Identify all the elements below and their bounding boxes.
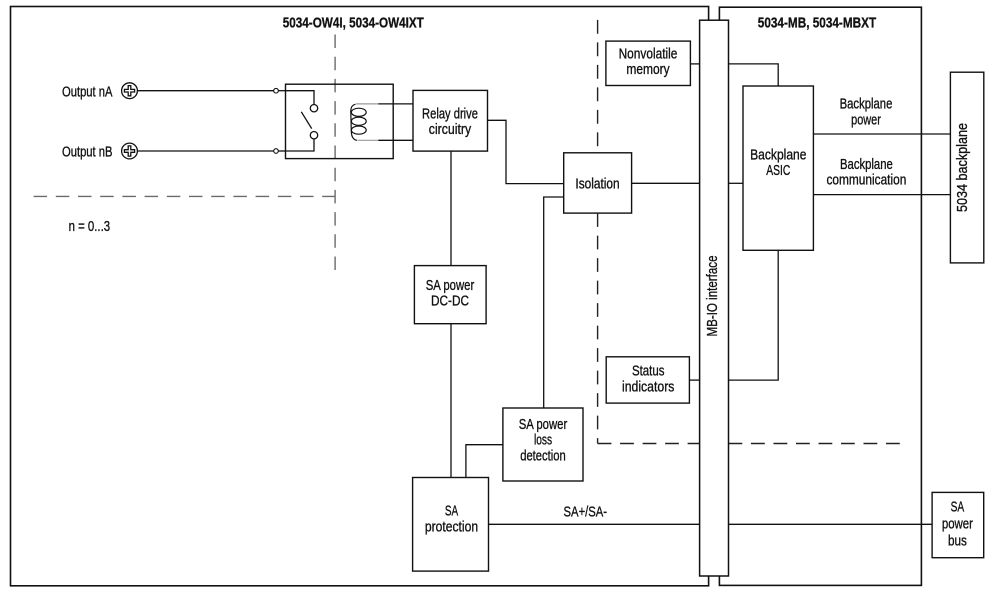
svg-text:5034 backplane: 5034 backplane xyxy=(955,123,971,212)
svg-text:SA: SA xyxy=(951,500,965,516)
svg-text:DC-DC: DC-DC xyxy=(431,294,469,310)
svg-text:communication: communication xyxy=(827,173,907,189)
svg-text:MB-IO interface: MB-IO interface xyxy=(705,256,721,337)
svg-text:power: power xyxy=(851,112,881,128)
svg-text:circuitry: circuitry xyxy=(429,122,472,138)
svg-text:power: power xyxy=(942,517,973,533)
svg-text:SA: SA xyxy=(445,504,459,520)
svg-text:Backplane: Backplane xyxy=(750,147,806,163)
svg-text:ASIC: ASIC xyxy=(766,163,790,179)
svg-text:memory: memory xyxy=(626,62,670,78)
svg-text:Status: Status xyxy=(632,364,665,380)
svg-text:Output nA: Output nA xyxy=(62,84,113,100)
svg-text:bus: bus xyxy=(948,534,967,550)
svg-text:detection: detection xyxy=(520,449,566,465)
svg-text:Nonvolatile: Nonvolatile xyxy=(619,46,678,62)
svg-text:SA power: SA power xyxy=(519,417,568,433)
svg-text:Isolation: Isolation xyxy=(575,176,619,192)
svg-text:5034-OW4I, 5034-OW4IXT: 5034-OW4I, 5034-OW4IXT xyxy=(283,14,424,31)
svg-text:protection: protection xyxy=(425,519,478,535)
svg-text:Backplane: Backplane xyxy=(840,157,893,173)
svg-text:indicators: indicators xyxy=(622,380,674,396)
svg-text:Backplane: Backplane xyxy=(840,97,893,113)
svg-text:SA power: SA power xyxy=(426,278,475,294)
svg-text:SA+/SA-: SA+/SA- xyxy=(564,505,608,521)
svg-text:loss: loss xyxy=(534,433,552,449)
svg-text:n = 0...3: n = 0...3 xyxy=(69,219,111,235)
svg-text:Output nB: Output nB xyxy=(62,144,113,160)
svg-text:5034-MB, 5034-MBXT: 5034-MB, 5034-MBXT xyxy=(758,14,876,31)
svg-text:Relay drive: Relay drive xyxy=(422,107,478,123)
